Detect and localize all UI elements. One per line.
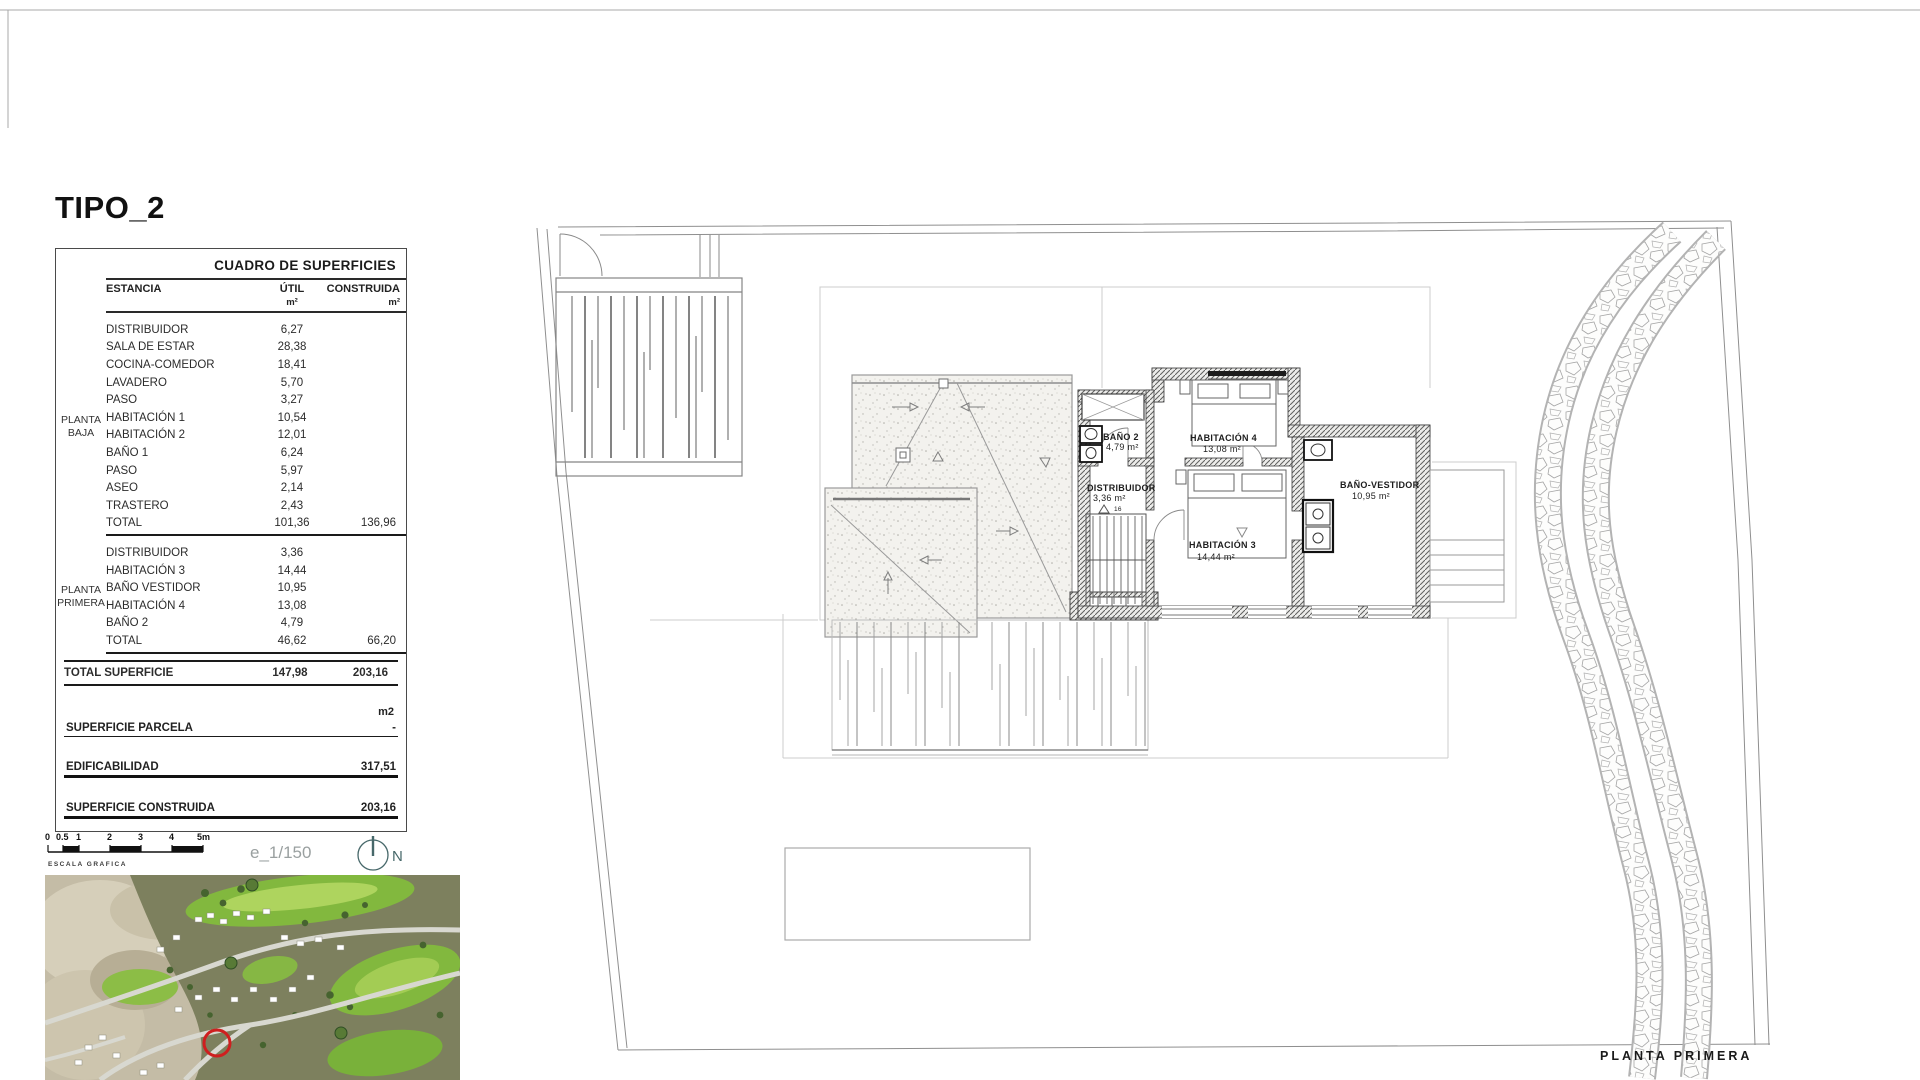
plan-caption: PLANTA PRIMERA [1600, 1049, 1752, 1063]
svg-text:2: 2 [107, 832, 112, 842]
scale-caption: ESCALA GRAFICA [48, 861, 127, 868]
scale-ratio-label: e_1/150 [250, 843, 311, 862]
entry-gate [560, 234, 719, 277]
svg-text:14,44 m²: 14,44 m² [1197, 552, 1235, 562]
north-arrow-icon: N [358, 836, 403, 870]
pergola [556, 278, 742, 476]
pool-outline [785, 848, 1030, 940]
roof-secondary [825, 488, 977, 637]
svg-text:4: 4 [169, 832, 174, 842]
sheet-frame [0, 10, 1920, 128]
north-label: N [392, 848, 403, 865]
room-label-bano2: BAÑO 2 [1103, 432, 1139, 442]
svg-text:0: 0 [45, 832, 50, 842]
wood-deck [832, 620, 1148, 755]
stone-path [1548, 232, 1716, 1078]
svg-text:5m: 5m [197, 832, 210, 842]
stair-count-label: 16 [1114, 506, 1122, 513]
svg-text:13,08 m²: 13,08 m² [1203, 444, 1241, 454]
scale-bar: 0 0.5 1 2 3 4 5m ESCALA GRAFICA [45, 832, 210, 868]
room-label-habitacion3: HABITACIÓN 3 [1189, 539, 1256, 550]
house-first-floor: BAÑO 2 4,79 m² HABITACIÓN 4 13,08 m² DIS… [1070, 368, 1504, 620]
plan-sheet: { "page": { "title": "TIPO_2" }, "table"… [0, 0, 1920, 1080]
room-label-distribuidor: DISTRIBUIDOR [1087, 483, 1156, 493]
svg-text:3,36 m²: 3,36 m² [1093, 493, 1126, 503]
room-label-bano-vestidor: BAÑO-VESTIDOR [1340, 480, 1420, 490]
room-label-habitacion4: HABITACIÓN 4 [1190, 432, 1257, 443]
svg-text:1: 1 [76, 832, 81, 842]
svg-text:0.5: 0.5 [56, 832, 69, 842]
svg-text:3: 3 [138, 832, 143, 842]
site-map [45, 875, 460, 1080]
svg-text:4,79 m²: 4,79 m² [1106, 442, 1139, 452]
svg-text:10,95 m²: 10,95 m² [1352, 491, 1390, 501]
balcony-steps [1430, 470, 1504, 602]
